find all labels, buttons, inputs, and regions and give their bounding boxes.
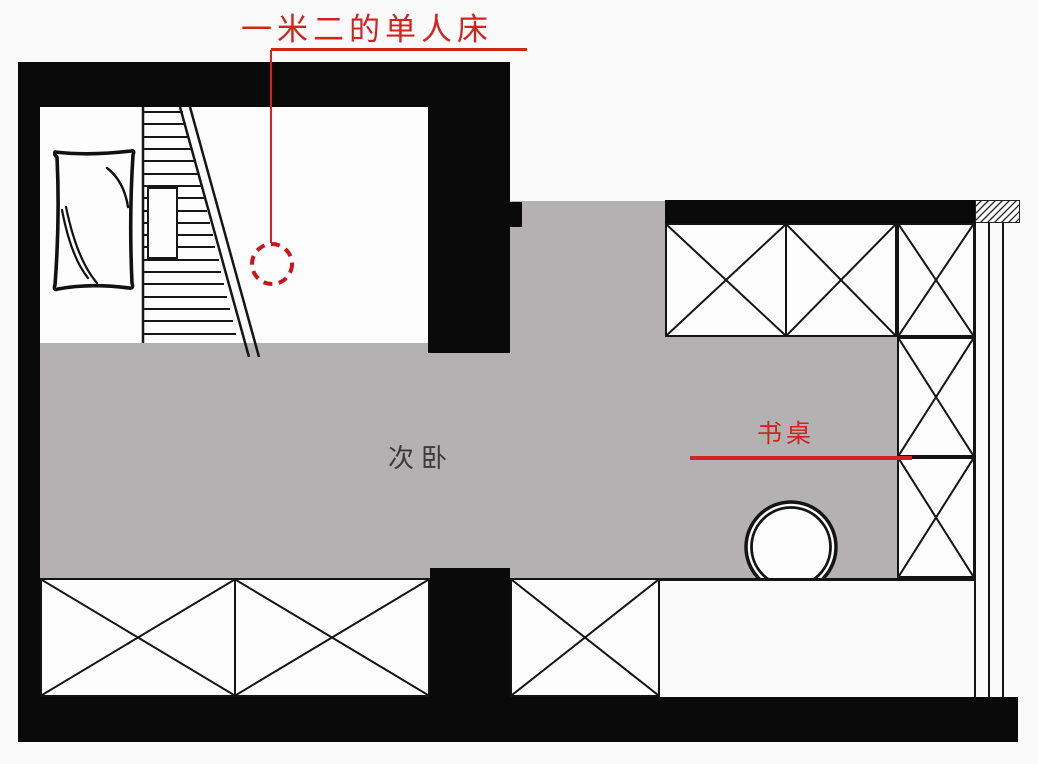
bed-annotation-label: 一米二的单人床 — [241, 14, 493, 45]
room-label: 次卧 — [388, 446, 454, 472]
hatched-wall-section — [975, 200, 1020, 223]
bed-annotation-underline — [271, 48, 527, 51]
bed-pillow — [54, 151, 133, 290]
wardrobe-box — [785, 223, 897, 337]
wall-bottom — [18, 697, 1018, 742]
wardrobe-box — [40, 578, 236, 697]
wall-pillar-bottom — [430, 568, 510, 700]
ladder-slope-lines — [180, 107, 259, 357]
wardrobe-box — [510, 578, 660, 697]
desk-edge-line — [658, 578, 976, 581]
wardrobe-box — [234, 578, 430, 697]
wardrobe-box — [897, 223, 975, 337]
bed-annotation-target-circle — [247, 238, 297, 288]
wall-pillar-nub — [510, 202, 522, 227]
window-line — [1002, 223, 1004, 697]
floor-plan: 次卧 一米二的单人床 书桌 — [0, 0, 1038, 764]
desk-annotation-label: 书桌 — [757, 422, 815, 447]
wardrobe-box — [897, 337, 975, 457]
wall-top-right — [665, 200, 975, 223]
bed-annotation-leader — [270, 50, 272, 243]
desk-annotation-line — [690, 456, 912, 460]
window-line — [974, 223, 976, 697]
wall-top — [18, 62, 510, 107]
wall-pillar-top — [428, 107, 510, 353]
wardrobe-box — [665, 223, 787, 337]
wall-left — [18, 62, 40, 742]
desk-stool — [742, 498, 840, 579]
wardrobe-box — [897, 457, 975, 578]
ladder-landing — [148, 188, 177, 258]
bed-and-ladder — [40, 107, 280, 367]
window-line — [988, 223, 990, 697]
